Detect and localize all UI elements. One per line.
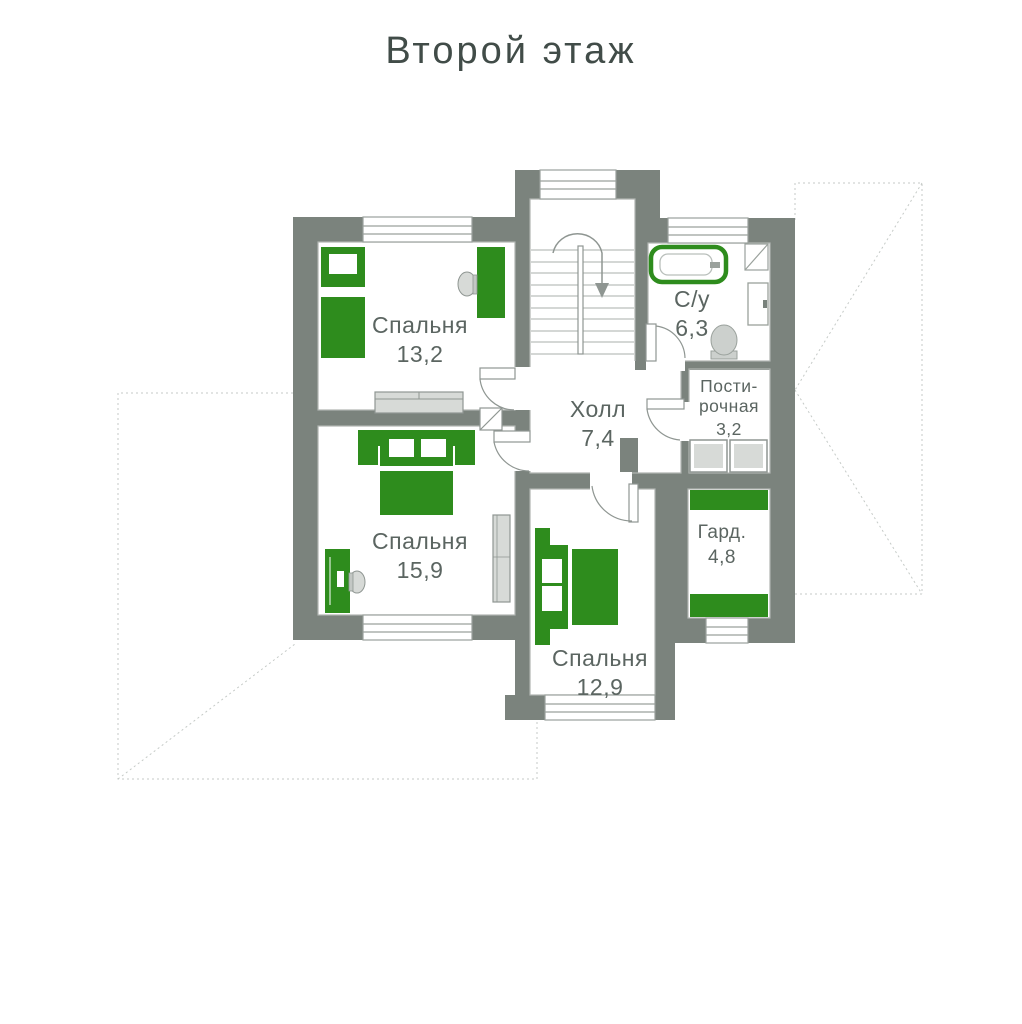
room-name: Пости-рочная	[683, 376, 775, 416]
door-bedroom-13-2	[480, 368, 515, 410]
window	[706, 618, 748, 643]
roof-outline-right	[795, 183, 922, 594]
staircase	[531, 234, 634, 354]
sink-cabinet-icon	[748, 283, 768, 325]
room-area: 6,3	[675, 315, 708, 341]
room-label-bedroom-13-2: Спальня 13,2	[372, 312, 468, 368]
room-label-bedroom-15-9: Спальня 15,9	[372, 528, 468, 584]
double-bed-icon	[535, 528, 618, 645]
room-area: 15,9	[397, 557, 444, 583]
room-area: 13,2	[397, 341, 444, 367]
room-name: С/у	[674, 286, 710, 312]
wardrobe-cabinet-icon	[493, 515, 510, 602]
room-name: Гард.	[698, 522, 747, 544]
window	[363, 615, 472, 640]
shower-tray-icon	[745, 244, 768, 270]
room-label-hall: Холл 7,4	[570, 396, 626, 452]
window	[668, 218, 748, 243]
room-label-laundry: Пости-рочная 3,2	[683, 376, 775, 439]
room-name: Спальня	[552, 645, 648, 671]
door-laundry	[647, 399, 684, 440]
room-area: 12,9	[577, 674, 624, 700]
floor-plan-canvas: Второй этаж	[0, 0, 1022, 1024]
chair-icon	[458, 272, 477, 296]
faucet-icon	[710, 262, 720, 268]
double-bed-icon	[358, 430, 475, 515]
stair-stringer	[578, 246, 583, 354]
bathtub-icon	[651, 247, 726, 282]
dryer-machine-icon	[730, 440, 767, 472]
shaft-icon	[480, 408, 502, 430]
room-label-bedroom-12-9: Спальня 12,9	[552, 645, 648, 701]
washing-machine-icon	[690, 440, 727, 472]
chair-icon	[349, 571, 365, 593]
room-label-bathroom: С/у 6,3	[674, 286, 710, 342]
window	[363, 217, 472, 242]
toilet-icon	[711, 325, 737, 359]
room-name: Спальня	[372, 312, 468, 338]
room-name: Спальня	[372, 528, 468, 554]
room-label-wardrobe: Гард. 4,8	[698, 522, 747, 569]
window	[540, 170, 616, 199]
dresser-icon	[375, 392, 463, 413]
single-bed-icon	[321, 247, 365, 358]
room-name: Холл	[570, 396, 626, 422]
room-area: 3,2	[716, 419, 742, 439]
floor-plan	[0, 0, 1022, 1024]
room-area: 4,8	[708, 547, 736, 569]
room-area: 7,4	[581, 425, 614, 451]
desk-icon	[477, 247, 505, 318]
desk-icon	[325, 549, 350, 613]
